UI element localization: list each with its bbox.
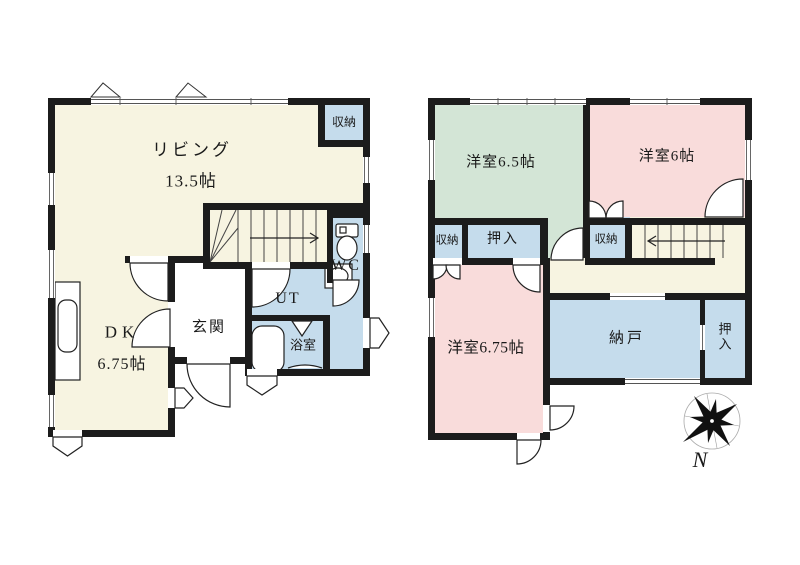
label-wc: WC — [331, 258, 361, 274]
label-closet: 押入 — [487, 233, 519, 247]
label-dk: DK — [105, 324, 140, 341]
label-entrance: 玄関 — [192, 321, 226, 336]
kitchen-counter-icon — [55, 282, 80, 380]
label-storage-2f-mid: 収納 — [595, 234, 618, 246]
window-awning-icon — [91, 83, 120, 97]
floor2-plan — [428, 98, 752, 464]
exterior-door-icon — [53, 437, 82, 456]
floorplan-drawing — [0, 0, 800, 565]
label-room6: 洋室6帖 — [639, 150, 696, 165]
label-bath: 浴室 — [290, 339, 316, 352]
label-dk-size: 6.75帖 — [97, 357, 146, 373]
label-closet-side: 押入 — [718, 322, 731, 352]
label-room675: 洋室6.75帖 — [447, 340, 524, 356]
exterior-door-fan — [517, 440, 541, 464]
label-nando: 納戸 — [609, 332, 645, 347]
label-compass-north: N — [693, 449, 708, 471]
label-storage-2f-left: 収納 — [436, 235, 459, 247]
entrance-door-arc — [187, 364, 230, 407]
label-living-size: 13.5帖 — [165, 173, 217, 190]
floorplan-canvas: リビング 13.5帖 収納 WC UT 浴室 玄関 DK 6.75帖 洋室6.5… — [0, 0, 800, 565]
exterior-door-fan — [550, 406, 574, 430]
compass-rose-icon — [683, 393, 740, 449]
toilet-icon — [336, 224, 358, 260]
label-ut: UT — [275, 291, 300, 307]
window-awning-icon — [176, 83, 206, 97]
label-room65: 洋室6.5帖 — [466, 156, 536, 171]
exterior-door-icon — [247, 376, 277, 395]
entrance-floor — [168, 262, 252, 364]
exterior-door-icon — [370, 318, 389, 348]
label-living: リビング — [152, 142, 232, 159]
exterior-door-icon — [175, 388, 193, 408]
label-storage-1f: 収納 — [332, 116, 356, 128]
